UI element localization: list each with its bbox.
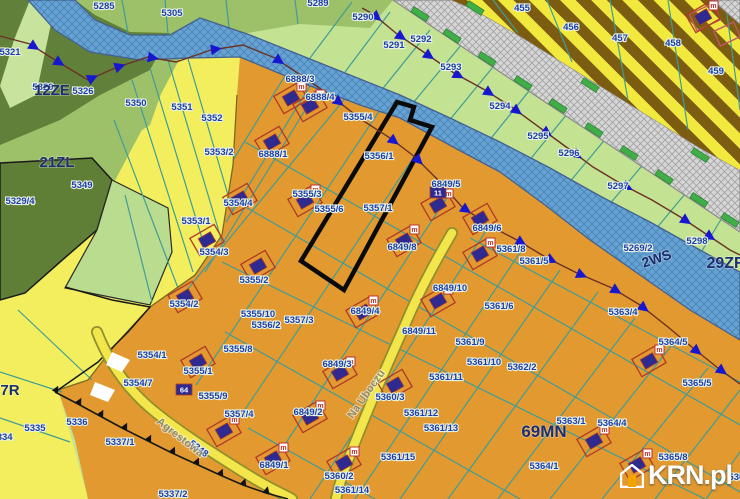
parcel-label: 5295 <box>527 131 549 142</box>
parcel-label: 457 <box>612 33 628 44</box>
parcel-label: 5336 <box>66 417 87 428</box>
svg-text:64: 64 <box>180 386 189 395</box>
krn-watermark[interactable]: KRN.pl <box>620 460 732 491</box>
parcel-label: 5355/8 <box>223 344 252 355</box>
krn-house-icon <box>620 464 644 488</box>
building-m-badge: m <box>709 1 718 10</box>
parcel-label: 5355/1 <box>183 366 213 377</box>
parcel-label: 5354/2 <box>169 299 198 310</box>
parcel-label: 5353/1 <box>181 216 211 227</box>
parcel-label: 5361/10 <box>467 357 501 368</box>
parcel-label: 5337/1 <box>105 437 135 448</box>
parcel-label: 6888/3 <box>285 74 314 85</box>
parcel-label: 6849/5 <box>431 179 461 190</box>
svg-text:m: m <box>710 3 716 10</box>
parcel-label: 5337/2 <box>158 489 187 499</box>
svg-text:m: m <box>644 451 650 458</box>
svg-text:m: m <box>487 240 493 247</box>
parcel-label: 5355/3 <box>292 189 321 200</box>
parcel-label: 6849/1 <box>259 460 289 471</box>
building-m-badge: m <box>486 238 495 247</box>
parcel-label: 5361/9 <box>455 337 484 348</box>
parcel-label: 5355/4 <box>343 112 373 123</box>
svg-text:m: m <box>370 298 376 305</box>
parcel-label: 5353/2 <box>204 147 233 158</box>
building-m-badge: m <box>369 296 378 305</box>
parcel-label: 458 <box>665 38 681 49</box>
parcel-label: 5291 <box>383 40 405 51</box>
map-viewport[interactable]: mmmmmmmmmmmmmmmmm 1164 52855305528952905… <box>0 0 740 499</box>
parcel-label: 5356/2 <box>251 320 280 331</box>
parcel-label: 5321 <box>0 47 21 58</box>
zone-label: 69MN <box>521 422 566 441</box>
parcel-label: 5354/7 <box>123 378 152 389</box>
building-m-badge: m <box>643 449 652 458</box>
parcel-label: 5285 <box>93 1 115 12</box>
parcel-label: 5357/3 <box>284 315 313 326</box>
building-m-badge: m <box>279 443 288 452</box>
parcel-label: 459 <box>708 66 724 77</box>
parcel-label: 5329/4 <box>5 196 35 207</box>
parcel-label: 5355/2 <box>239 275 268 286</box>
parcel-label: 5361/12 <box>404 408 438 419</box>
parcel-label: 455 <box>514 3 531 14</box>
parcel-label: 5349 <box>71 180 92 191</box>
parcel-label: 5362/2 <box>507 362 536 373</box>
parcel-label: 5357/4 <box>224 409 254 420</box>
parcel-label: 5363/4 <box>608 307 638 318</box>
map-canvas[interactable]: mmmmmmmmmmmmmmmmm 1164 52855305528952905… <box>0 0 740 499</box>
krn-brand-text: KRN.pl <box>648 460 732 491</box>
parcel-label: 5354/1 <box>137 350 167 361</box>
building-m-badge: m <box>350 447 359 456</box>
parcel-label: 5357/1 <box>363 203 393 214</box>
parcel-label: 6849/8 <box>387 242 416 253</box>
parcel-label: 5361/14 <box>335 485 370 496</box>
parcel-label: 6849/2 <box>293 407 322 418</box>
parcel-label: 6849/10 <box>433 283 467 294</box>
parcel-label: 5361/8 <box>496 244 525 255</box>
parcel-label: 5364/4 <box>597 418 627 429</box>
parcel-label: 5361/11 <box>429 372 464 383</box>
parcel-label: 5290 <box>352 12 373 23</box>
parcel-label: 6849/4 <box>350 306 380 317</box>
parcel-label: 5355/9 <box>198 391 227 402</box>
parcel-label: 5292 <box>410 34 431 45</box>
zone-label: 7R <box>0 382 19 399</box>
parcel-label: 5294 <box>489 101 511 112</box>
parcel-label: 5326 <box>72 86 93 97</box>
parcel-label: 5360/2 <box>324 471 353 482</box>
svg-text:m: m <box>351 449 357 456</box>
svg-text:m: m <box>656 347 662 354</box>
parcel-label: 5305 <box>161 8 183 19</box>
parcel-label: 456 <box>563 22 579 33</box>
parcel-label: 6849/3 <box>322 359 351 370</box>
svg-text:m: m <box>411 227 417 234</box>
zone-label: 21ZL <box>39 154 74 171</box>
number-badge: 64 <box>176 384 192 395</box>
parcel-label: 5351 <box>171 102 193 113</box>
parcel-label: 5297 <box>607 181 628 192</box>
parcel-label: 5298 <box>686 236 707 247</box>
parcel-label: 6888/1 <box>258 149 288 160</box>
parcel-label: 6849/11 <box>402 326 437 337</box>
parcel-label: 5364/1 <box>529 461 559 472</box>
parcel-label: 5289 <box>307 0 328 9</box>
parcel-label: 5354/4 <box>223 198 253 209</box>
parcel-label: 6888/4 <box>305 92 335 103</box>
parcel-label: 5355/10 <box>241 309 275 320</box>
parcel-label: 5354/3 <box>199 247 228 258</box>
parcel-label: 6849/6 <box>472 223 501 234</box>
parcel-label: 5361/13 <box>424 423 458 434</box>
parcel-label: 5355/6 <box>314 204 343 215</box>
parcel-label: 5334 <box>0 432 13 443</box>
parcel-label: 5296 <box>558 148 579 159</box>
svg-text:m: m <box>298 84 304 91</box>
parcel-label: 5352 <box>201 113 222 124</box>
parcel-label: 5335 <box>24 423 46 434</box>
parcel-label: 5361/6 <box>484 301 513 312</box>
zone-label: 12ZE <box>34 82 70 99</box>
parcel-label: 5365/5 <box>682 378 712 389</box>
parcel-label: 5364/5 <box>658 337 688 348</box>
parcel-label: 5350 <box>125 98 146 109</box>
parcel-label: 5293 <box>440 62 461 73</box>
parcel-label: 5356/1 <box>364 151 394 162</box>
svg-text:m: m <box>280 445 286 452</box>
building-m-badge: m <box>410 225 419 234</box>
zone-label: 29ZR <box>706 255 740 272</box>
parcel-label: 5361/5 <box>519 256 549 267</box>
parcel-label: 5360/3 <box>375 392 404 403</box>
parcel-label: 5361/15 <box>381 452 416 463</box>
